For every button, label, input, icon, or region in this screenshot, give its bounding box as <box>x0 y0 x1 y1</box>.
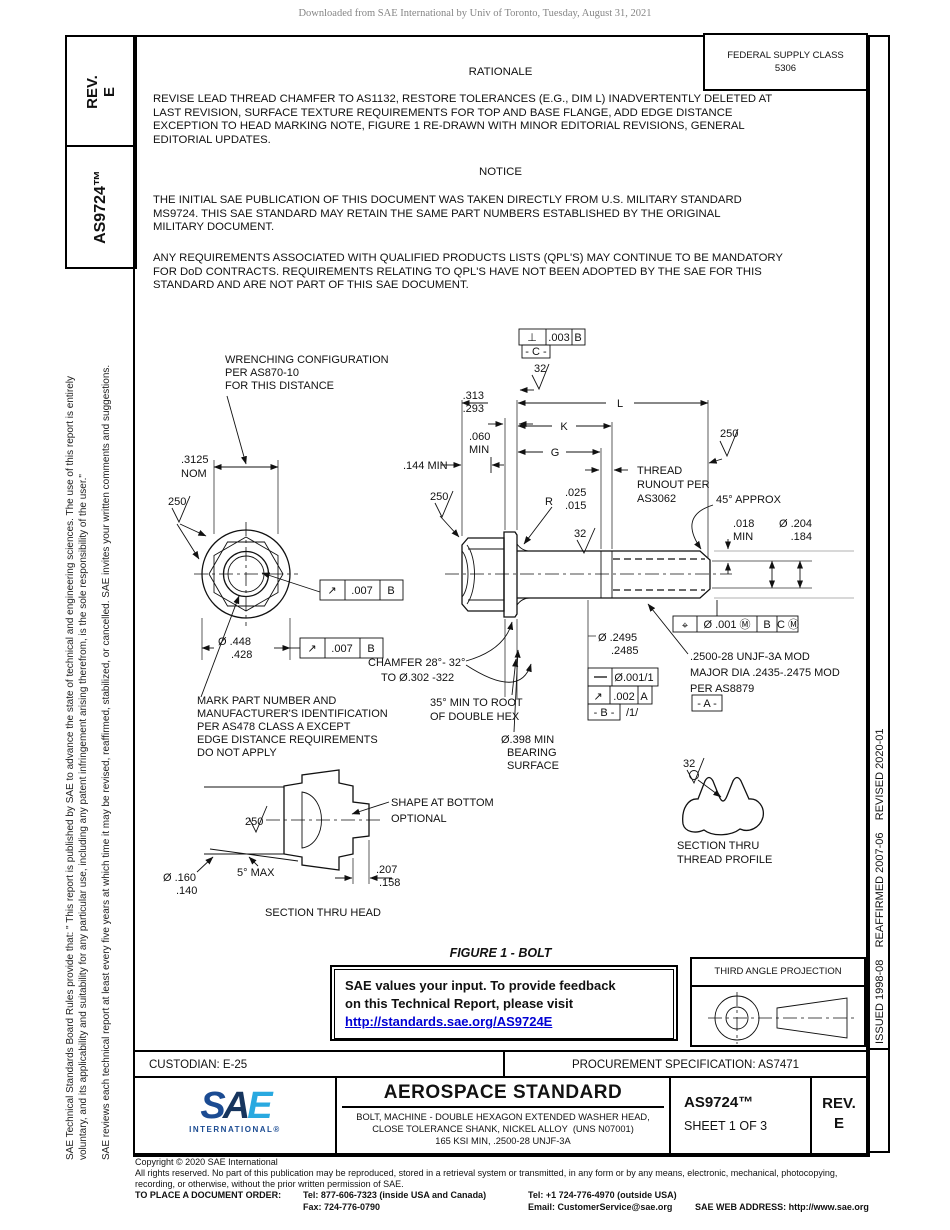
docnumber-cell: AS9724™ SHEET 1 OF 3 <box>669 1076 812 1155</box>
fig-label-pos-val: Ø .001 Ⓜ <box>703 618 750 631</box>
notice-para2-line: STANDARD AND ARE NOT PART OF THIS SAE DO… <box>153 279 865 293</box>
fig-label-note-35-min: 35° MIN TO ROOTOF DOUBLE HEX <box>430 697 523 723</box>
fig-label-caption-section-thread: SECTION THRUTHREAD PROFILE <box>677 840 772 866</box>
procurement-text: PROCUREMENT SPECIFICATION: AS7471 <box>572 1059 799 1071</box>
fig-label-datum-a: - A - <box>697 698 717 710</box>
fig-label-dim-144-min: .144 MIN <box>403 460 448 472</box>
web-address: SAE WEB ADDRESS: http://www.sae.org <box>695 1202 869 1212</box>
section-thru-head <box>197 770 392 884</box>
fig-label-fcf-perp-val: .003 <box>548 332 569 344</box>
fig-label-dim-160-140: Ø .160.140 <box>163 872 197 897</box>
copyright-block: Copyright © 2020 SAE InternationalAll ri… <box>135 1157 915 1189</box>
fig-label-finish-250-shank-end: 250 <box>720 428 738 440</box>
sidebar-review-text: SAE reviews each technical report at lea… <box>101 365 112 1160</box>
fig-label-dim-018-min: .018MIN <box>733 518 754 543</box>
logo-cell: SAE INTERNATIONAL® <box>133 1076 337 1155</box>
fig-label-finish-32-shank: 32 <box>574 528 586 540</box>
standard-description: BOLT, MACHINE - DOUBLE HEXAGON EXTENDED … <box>337 1111 669 1147</box>
fig-label-mark-note: MARK PART NUMBER ANDMANUFACTURER'S IDENT… <box>197 695 388 759</box>
fig-label-finish-32-profile: 32 <box>683 758 695 770</box>
rev-cell: REV. E <box>810 1076 868 1155</box>
date-strip-divider <box>868 1048 888 1050</box>
fsc-line1: FEDERAL SUPPLY CLASS <box>705 49 866 62</box>
copyright-block-line: recording, or otherwise, without the pri… <box>135 1179 915 1190</box>
projection-symbol <box>692 987 864 1046</box>
download-watermark: Downloaded from SAE International by Uni… <box>0 8 950 19</box>
fig-label-wrenching-note: WRENCHING CONFIGURATIONPER AS870-10FOR T… <box>225 354 389 392</box>
fig-label-runout-shank-sym: ↗ <box>593 691 602 703</box>
fsc-box: FEDERAL SUPPLY CLASS 5306 <box>703 33 868 91</box>
standard-description-line: BOLT, MACHINE - DOUBLE HEXAGON EXTENDED … <box>337 1111 669 1123</box>
tab-rev-box: REV. E <box>65 35 137 149</box>
fig-label-flag-1: /1/ <box>626 707 639 719</box>
rationale-body: REVISE LEAD THREAD CHAMFER TO AS1132, RE… <box>153 93 865 147</box>
fig-label-angle-45-approx: 45° APPROX <box>716 494 782 506</box>
fig-label-dim-r-values: .025.015 <box>565 487 586 512</box>
sidebar-review-note: SAE reviews each technical report at lea… <box>100 280 113 1160</box>
fig-label-thread-runout-note: THREADRUNOUT PERAS3062 <box>637 465 710 505</box>
rationale-body-line: REVISE LEAD THREAD CHAMFER TO AS1132, RE… <box>153 93 865 107</box>
notice-para1-line: MS9724. THIS SAE STANDARD MAY RETAIN THE… <box>153 208 865 222</box>
sidebar-disclaimer-line: voluntary, and its applicability and sui… <box>77 280 90 1160</box>
feedback-box: SAE values your input. To provide feedba… <box>330 965 678 1041</box>
notice-para2-line: ANY REQUIREMENTS ASSOCIATED WITH QUALIFI… <box>153 252 865 266</box>
fig-label-finish-250-section: 250 <box>245 816 263 828</box>
fig-label-runout-lower-datum: B <box>367 643 374 655</box>
fig-label-thread-spec-note: .2500-28 UNJF-3A MODMAJOR DIA .2435-.247… <box>690 651 840 695</box>
fig-label-radius-r: R <box>545 496 553 508</box>
fig-label-runout-upper-val: .007 <box>351 585 372 597</box>
fig-label-runout-lower-val: .007 <box>331 643 352 655</box>
fig-label-pos-sym: ⌖ <box>682 620 688 632</box>
fig-label-dim-3125-nom: .3125NOM <box>181 454 209 480</box>
custodian-cell: CUSTODIAN: E-25 <box>133 1050 505 1078</box>
fig-label-pos-datum-c: C Ⓜ <box>777 618 799 631</box>
footer-sheet: SHEET 1 OF 3 <box>671 1111 810 1133</box>
feedback-line2: on this Technical Report, please visit <box>345 995 663 1013</box>
footer-rev-value: E <box>812 1114 866 1134</box>
fig-label-dim-L: L <box>617 398 623 410</box>
fig-label-dim-K: K <box>560 421 568 433</box>
fig-label-note-bearing: Ø.398 MINBEARINGSURFACE <box>501 734 559 772</box>
fig-label-runout-lower-sym: ↗ <box>307 643 316 655</box>
notice-para1: THE INITIAL SAE PUBLICATION OF THIS DOCU… <box>153 194 865 235</box>
feedback-link[interactable]: http://standards.sae.org/AS9724E <box>345 1014 552 1029</box>
sidebar-disclaimer: SAE Technical Standards Board Rules prov… <box>64 280 90 1160</box>
notice-title: NOTICE <box>133 166 868 178</box>
fig-label-dim-G: G <box>551 447 560 459</box>
fig-label-dim-204-184: Ø .204.184 <box>779 518 812 543</box>
notice-para1-line: MILITARY DOCUMENT. <box>153 221 865 235</box>
custodian-text: CUSTODIAN: E-25 <box>149 1059 247 1071</box>
fig-label-fcf-perp-sym: ⊥ <box>527 332 537 344</box>
fig-label-finish-32-top: 32 <box>534 363 546 375</box>
fig-label-datum-b: - B - <box>594 707 615 719</box>
footer-rev-label: REV. <box>812 1094 866 1114</box>
fig-label-dim-448-428: Ø .448.428 <box>218 636 252 661</box>
rationale-body-line: LAST REVISION, SURFACE TEXTURE REQUIREME… <box>153 107 865 121</box>
fig-label-dim-2495-2485: Ø .2495.2485 <box>598 632 639 657</box>
title-rule <box>342 1106 664 1108</box>
sae-logo-letter-e: E <box>247 1085 269 1127</box>
feedback-line1: SAE values your input. To provide feedba… <box>345 977 663 995</box>
fig-label-shape-note: SHAPE AT BOTTOMOPTIONAL <box>391 797 494 825</box>
fig-label-datum-c: - C - <box>525 346 547 358</box>
order-label: TO PLACE A DOCUMENT ORDER: <box>135 1190 281 1200</box>
tel-outside: Tel: +1 724-776-4970 (outside USA) <box>528 1190 677 1200</box>
fig-label-dim-313-293: .313.293 <box>463 390 484 415</box>
fig-label-runout-shank-datum: A <box>640 691 648 703</box>
fig-label-finish-250-head-top: 250 <box>168 496 186 508</box>
copyright-block-line: Copyright © 2020 SAE International <box>135 1157 915 1168</box>
order-row-2: Fax: 724-776-0790 Email: CustomerService… <box>0 1202 950 1214</box>
fig-label-fcf-perp-datum: B <box>574 332 581 344</box>
fig-label-finish-250-head-side: 250 <box>430 491 448 503</box>
projection-title: THIRD ANGLE PROJECTION <box>692 959 864 987</box>
third-angle-projection-box: THIRD ANGLE PROJECTION <box>690 957 866 1047</box>
sae-logo: SAE INTERNATIONAL® <box>135 1078 335 1134</box>
tab-docnumber-box: AS9724™ <box>65 145 137 269</box>
standard-description-line: 165 KSI MIN, .2500-28 UNJF-3A <box>337 1135 669 1147</box>
date-strip-text: ISSUED 1998-08 REAFFIRMED 2007-06 REVISE… <box>872 594 888 1044</box>
order-row-1: TO PLACE A DOCUMENT ORDER: Tel: 877-606-… <box>0 1190 950 1202</box>
fig-label-runout-upper-datum: B <box>387 585 394 597</box>
fig-label-chamfer-note: CHAMFER 28°- 32°TO Ø.302 -322 <box>368 657 465 684</box>
fig-label-pos-datum-b: B <box>763 619 770 631</box>
title-cell: AEROSPACE STANDARD BOLT, MACHINE - DOUBL… <box>335 1076 671 1155</box>
rationale-body-line: EDITORIAL UPDATES. <box>153 134 865 148</box>
copyright-block-line: All rights reserved. No part of this pub… <box>135 1168 915 1179</box>
fig-label-angle-5-max: 5° MAX <box>237 867 275 879</box>
fax: Fax: 724-776-0790 <box>303 1202 380 1212</box>
tab-docnumber-label: AS9724™ <box>92 170 110 244</box>
fig-label-dim-207-158: .207.158 <box>376 864 400 889</box>
rationale-title: RATIONALE <box>133 66 868 78</box>
figure-1-bolt-drawing: WRENCHING CONFIGURATIONPER AS870-10FOR T… <box>133 315 870 950</box>
fig-label-runout-shank-val: .002 <box>613 691 634 703</box>
fig-label-dim-060-min: .060MIN <box>469 431 490 456</box>
sidebar-disclaimer-line: SAE Technical Standards Board Rules prov… <box>64 280 77 1160</box>
tab-rev-label: REV. E <box>84 75 118 109</box>
sae-logo-subtitle: INTERNATIONAL® <box>135 1125 335 1134</box>
standard-title: AEROSPACE STANDARD <box>337 1078 669 1104</box>
notice-para1-line: THE INITIAL SAE PUBLICATION OF THIS DOCU… <box>153 194 865 208</box>
footer-doc-number: AS9724™ <box>671 1078 810 1111</box>
tel-inside: Tel: 877-606-7323 (inside USA and Canada… <box>303 1190 486 1200</box>
notice-para2: ANY REQUIREMENTS ASSOCIATED WITH QUALIFI… <box>153 252 865 293</box>
procurement-cell: PROCUREMENT SPECIFICATION: AS7471 <box>503 1050 868 1078</box>
sae-logo-letter-a: A <box>223 1085 247 1127</box>
fig-label-straight-val: Ø.001/1 <box>614 672 653 684</box>
email: Email: CustomerService@sae.org <box>528 1202 672 1212</box>
notice-para2-line: FOR DoD CONTRACTS. REQUIREMENTS RELATING… <box>153 266 865 280</box>
sae-logo-letter-s: S <box>200 1085 222 1127</box>
fig-label-caption-section-head: SECTION THRU HEAD <box>265 907 381 919</box>
fig-label-runout-upper-sym: ↗ <box>327 585 336 597</box>
rationale-body-line: EXCEPTION TO HEAD MARKING NOTE, FIGURE 1… <box>153 120 865 134</box>
document-page: Downloaded from SAE International by Uni… <box>0 0 950 1230</box>
standard-description-line: CLOSE TOLERANCE SHANK, NICKEL ALLOY (UNS… <box>337 1123 669 1135</box>
